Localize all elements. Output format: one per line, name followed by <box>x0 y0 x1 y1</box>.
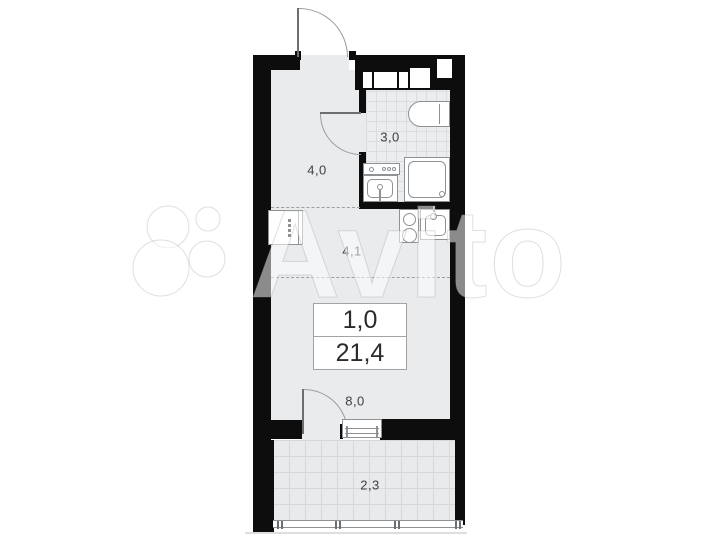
vent-shaft-5 <box>437 59 452 78</box>
floor-plan: 4,0 3,0 4,1 8,0 2,3 1,0 21,4 Avito <box>0 0 719 540</box>
balcony-wall-right <box>455 440 465 525</box>
glazing-tick <box>398 521 400 529</box>
bottom-wall-right <box>380 419 465 440</box>
wardrobe <box>268 210 303 245</box>
wardrobe-door-line <box>298 211 299 244</box>
entrance-door-swing <box>299 8 348 57</box>
wardrobe-hook-4 <box>288 234 291 237</box>
glazing-tick <box>335 521 337 529</box>
washbasin-knob-1 <box>369 167 374 172</box>
wardrobe-hook-2 <box>288 224 291 227</box>
room-label-bathroom: 3,0 <box>380 130 400 145</box>
zone-line-hallway <box>271 207 360 208</box>
washbasin-knob-4 <box>392 167 396 171</box>
room-label-balcony: 2,3 <box>360 478 380 493</box>
wardrobe-hook-3 <box>288 229 291 232</box>
window-cap-right <box>376 426 378 437</box>
top-wall-left <box>253 55 300 70</box>
hob-burner-2 <box>402 228 417 243</box>
vent-shaft-4 <box>410 68 430 88</box>
plan-bottom-edge <box>245 532 467 534</box>
washbasin-knob-2 <box>382 167 386 171</box>
shower-drain <box>439 191 445 197</box>
unit-rooms-value: 1,0 <box>314 304 406 337</box>
vent-shaft-2 <box>374 72 397 88</box>
left-wall <box>253 55 271 533</box>
glazing-tick <box>459 521 461 529</box>
entrance-threshold <box>300 55 349 70</box>
zone-line-kitchen <box>271 277 450 278</box>
glazing-tick <box>339 521 341 529</box>
balcony-glazing <box>273 520 463 528</box>
washbasin-pipe <box>379 190 381 202</box>
room-label-kitchen: 4,1 <box>342 244 362 259</box>
shower-cabin <box>404 157 450 202</box>
window-line-2 <box>345 433 379 434</box>
washbasin-knob-3 <box>387 167 391 171</box>
watermark-logo-circle-3 <box>133 240 189 296</box>
room-label-living: 8,0 <box>345 394 365 409</box>
window-cap-left <box>346 426 348 437</box>
glazing-tick <box>281 521 283 529</box>
bathroom-wall-upper <box>359 88 366 113</box>
glazing-tick <box>277 521 279 529</box>
wardrobe-hook-1 <box>288 219 291 222</box>
glazing-tick <box>394 521 396 529</box>
bathroom-wall-bottom <box>359 202 465 209</box>
kitchen-sink <box>420 209 450 240</box>
unit-area-value: 21,4 <box>314 337 406 369</box>
watermark-logo-circle-2 <box>196 207 220 231</box>
right-wall <box>450 55 465 439</box>
room-label-hallway: 4,0 <box>307 163 327 178</box>
toilet <box>408 101 450 127</box>
kitchen-faucet-stem <box>433 206 435 212</box>
washbasin-counter <box>363 163 400 175</box>
window <box>342 419 382 438</box>
hob <box>399 209 419 243</box>
bottom-wall-left <box>271 420 302 439</box>
vent-shaft-1 <box>363 72 372 88</box>
window-line-1 <box>345 428 379 429</box>
hob-burner-1 <box>403 213 416 226</box>
vent-shaft-3 <box>399 72 408 88</box>
kitchen-faucet <box>430 213 437 220</box>
toilet-tank-line <box>439 104 440 124</box>
watermark-logo-circle-4 <box>189 241 225 277</box>
watermark-logo-circle-1 <box>147 206 189 248</box>
washbasin <box>363 175 398 202</box>
glazing-tick <box>455 521 457 529</box>
unit-info-box: 1,0 21,4 <box>313 303 407 370</box>
